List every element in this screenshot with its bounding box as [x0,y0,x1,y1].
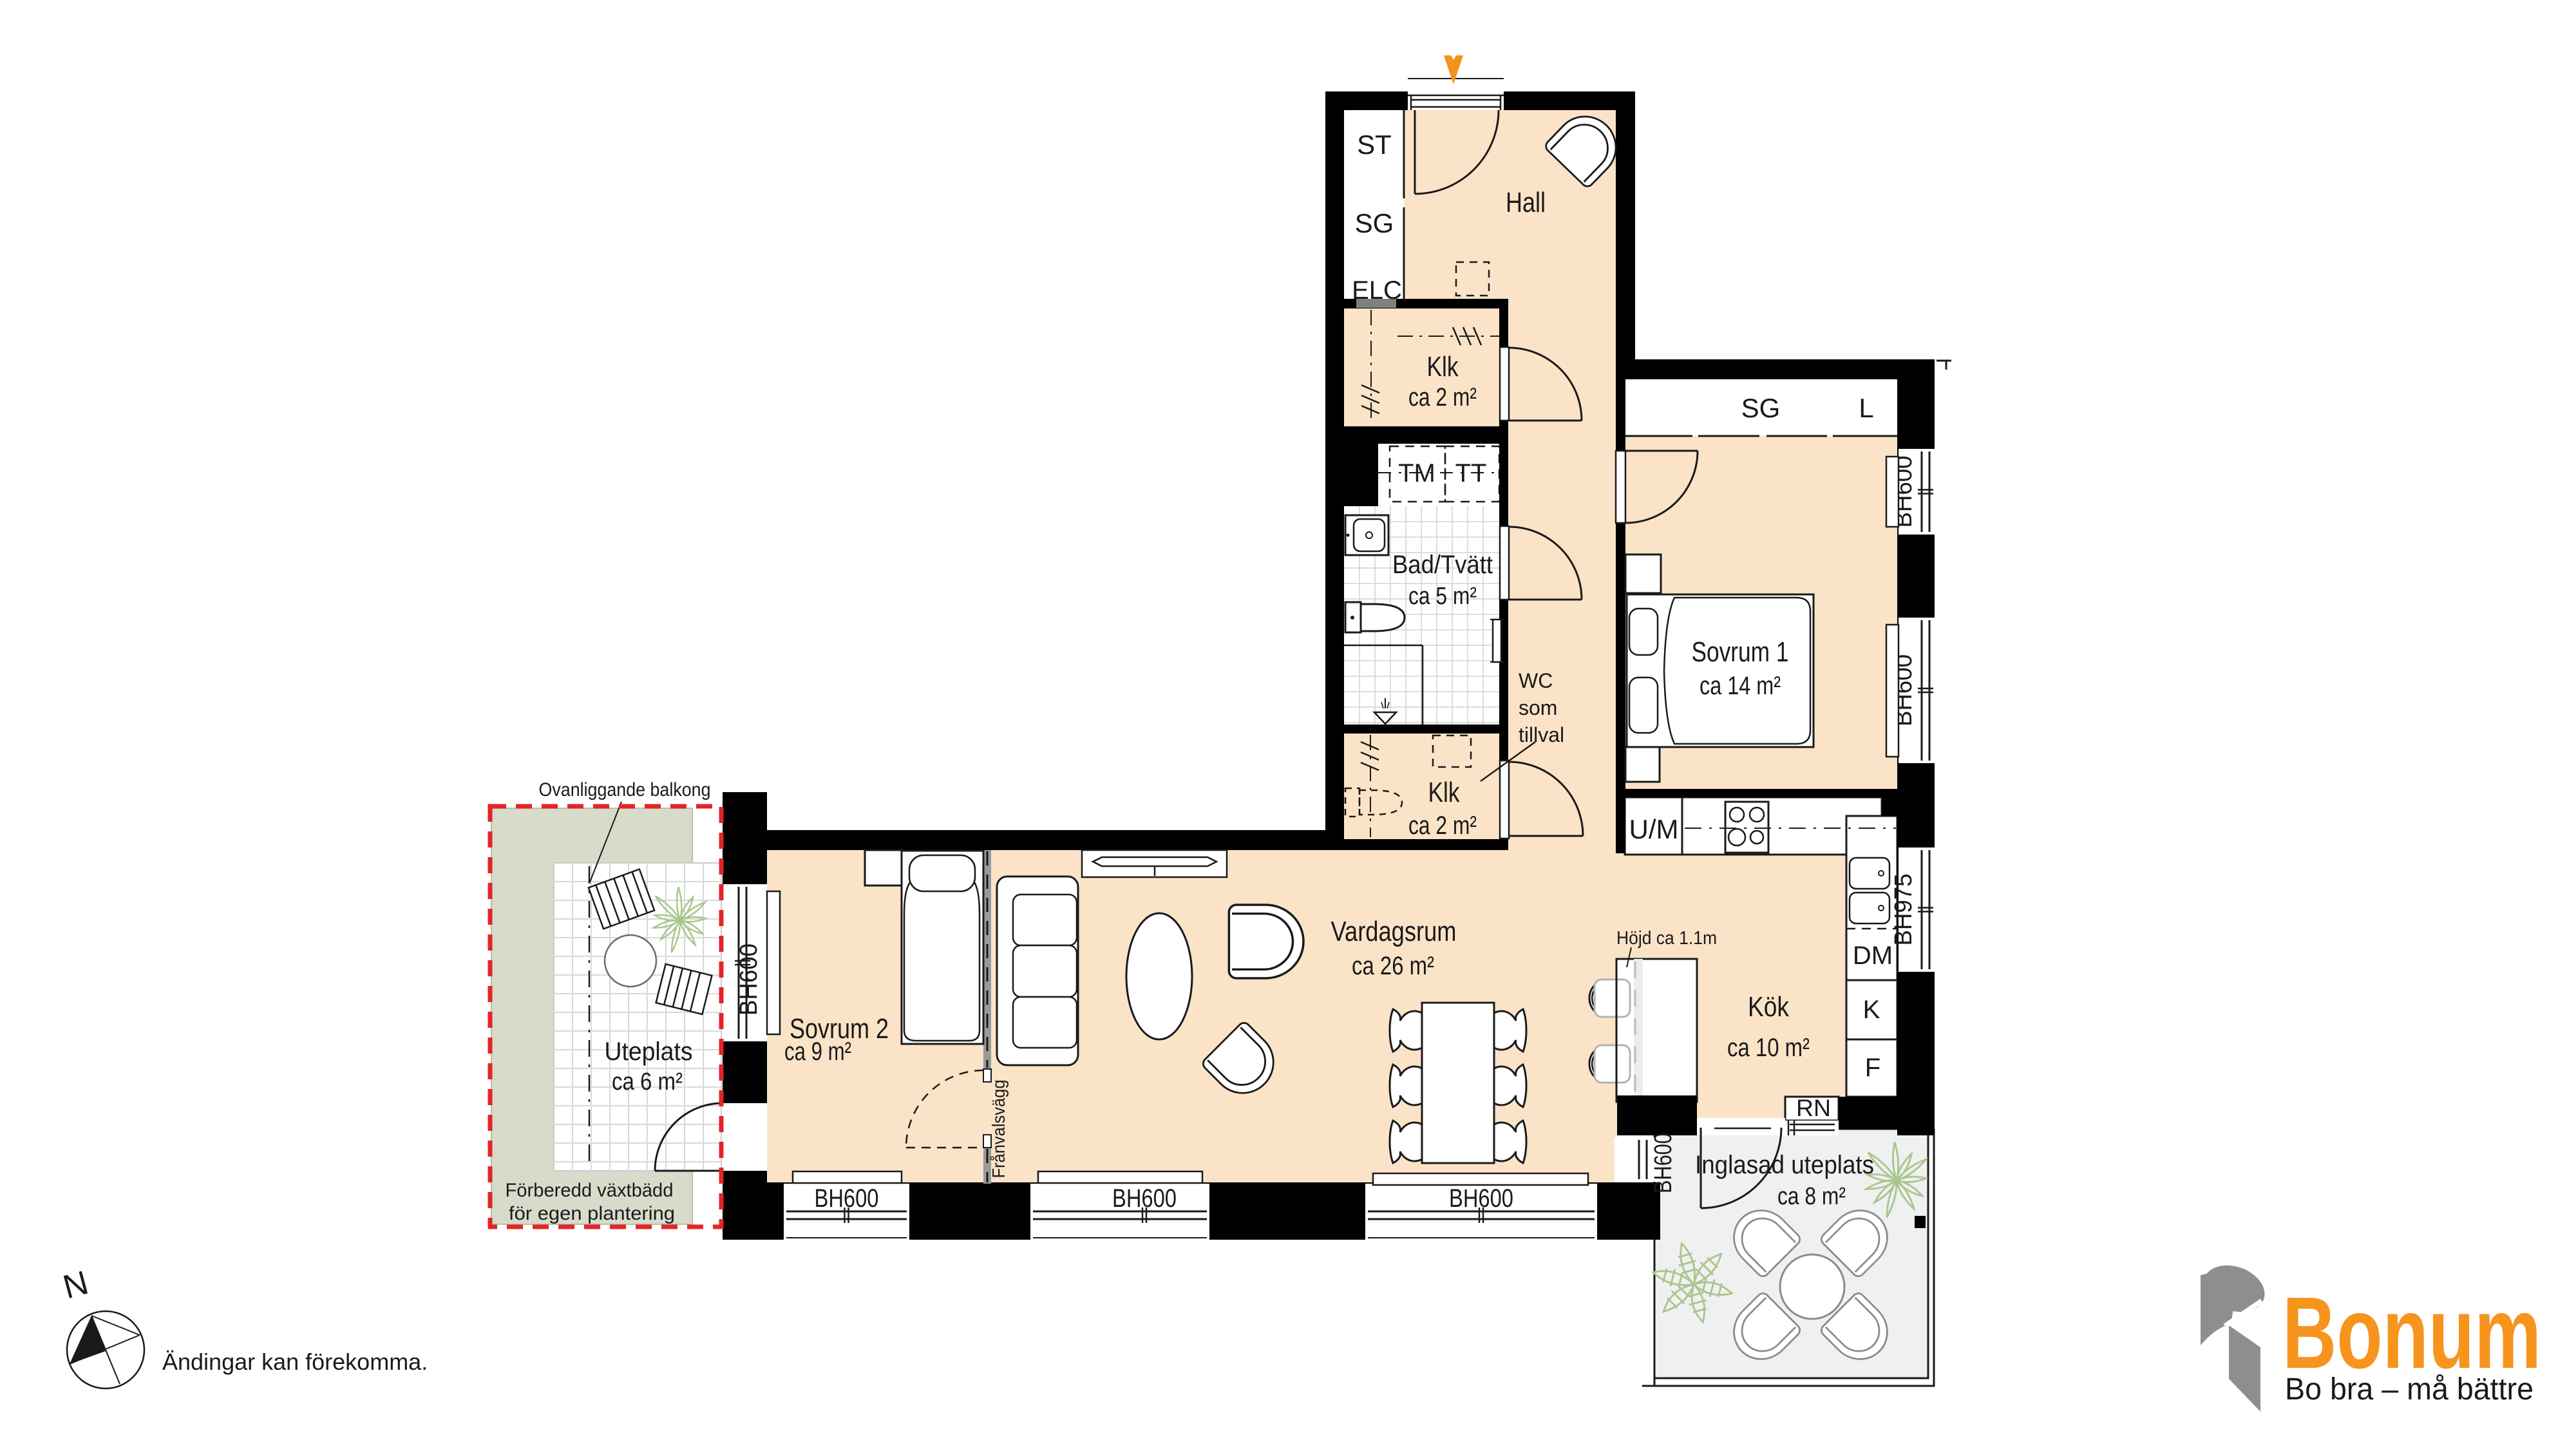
svg-text:Uteplats: Uteplats [605,1037,693,1066]
svg-text:BH600: BH600 [1650,1133,1677,1193]
svg-text:WC: WC [1519,669,1553,692]
svg-text:RN: RN [1796,1095,1831,1121]
svg-text:som: som [1519,696,1557,719]
svg-text:ca 2 m²: ca 2 m² [1408,811,1477,840]
svg-text:Höjd ca 1.1m: Höjd ca 1.1m [1616,928,1717,949]
svg-text:tillval: tillval [1519,723,1564,746]
svg-text:Vardagsrum: Vardagsrum [1331,916,1457,947]
svg-text:Klk: Klk [1427,351,1459,383]
svg-text:ca 10 m²: ca 10 m² [1727,1034,1810,1062]
svg-text:Hall: Hall [1506,187,1546,218]
svg-text:BH600: BH600 [1449,1184,1513,1213]
svg-text:Frånvalsvägg: Frånvalsvägg [989,1080,1009,1179]
svg-text:ca 6 m²: ca 6 m² [612,1068,683,1095]
svg-text:Ovanliggande balkong: Ovanliggande balkong [539,779,711,800]
svg-text:ca 14 m²: ca 14 m² [1700,672,1781,700]
svg-text:TM: TM [1398,459,1435,488]
svg-text:BH600: BH600 [735,943,762,1016]
svg-text:ca 9 m²: ca 9 m² [784,1037,851,1066]
svg-text:Bad/Tvätt: Bad/Tvätt [1392,551,1493,579]
svg-text:TT: TT [1455,459,1487,488]
svg-text:SG: SG [1741,393,1781,423]
svg-text:ca 5 m²: ca 5 m² [1408,583,1477,610]
svg-text:U/M: U/M [1629,814,1679,844]
svg-text:BH600: BH600 [815,1184,879,1213]
svg-text:DM: DM [1853,942,1893,970]
svg-text:SG: SG [1355,208,1394,238]
svg-text:K: K [1863,996,1880,1024]
svg-text:Kök: Kök [1748,991,1790,1023]
svg-text:BH975: BH975 [1890,874,1917,946]
svg-text:ca 26 m²: ca 26 m² [1352,952,1434,980]
svg-text:Inglasad uteplats: Inglasad uteplats [1695,1151,1874,1179]
svg-text:Sovrum 1: Sovrum 1 [1692,636,1789,668]
svg-text:Klk: Klk [1428,777,1461,808]
svg-text:L: L [1859,393,1873,423]
svg-text:Ändingar kan förekomma.: Ändingar kan förekomma. [162,1349,428,1375]
svg-text:Förberedd växtbädd: Förberedd växtbädd [506,1180,674,1201]
svg-text:BH600: BH600 [1112,1184,1177,1213]
svg-text:ca 2 m²: ca 2 m² [1408,383,1477,412]
svg-text:Bo bra – må bättre: Bo bra – må bättre [2285,1372,2533,1406]
svg-text:F: F [1865,1054,1880,1082]
svg-text:ca 8 m²: ca 8 m² [1777,1183,1846,1210]
svg-text:ST: ST [1357,129,1392,160]
svg-text:ELC: ELC [1352,276,1402,305]
svg-text:för egen plantering: för egen plantering [509,1203,675,1224]
